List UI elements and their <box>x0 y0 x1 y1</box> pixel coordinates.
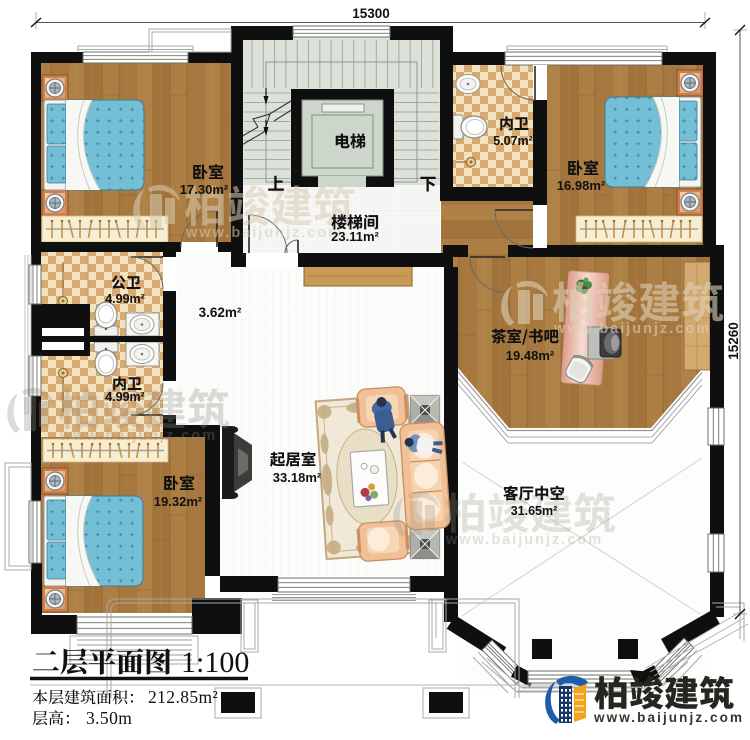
svg-text:4.99m²: 4.99m² <box>105 390 145 404</box>
svg-text:33.18m²: 33.18m² <box>273 470 322 485</box>
svg-text:4.99m²: 4.99m² <box>105 292 145 306</box>
svg-text:17.30m²: 17.30m² <box>180 182 229 197</box>
svg-text:19.48m²: 19.48m² <box>506 348 555 363</box>
svg-text:19.32m²: 19.32m² <box>154 494 203 509</box>
svg-text:16.98m²: 16.98m² <box>557 178 606 193</box>
svg-text:3.50m: 3.50m <box>86 708 132 728</box>
svg-text:15300: 15300 <box>352 6 390 21</box>
svg-text:3.62m²: 3.62m² <box>199 305 242 320</box>
svg-text:1:100: 1:100 <box>181 646 249 679</box>
svg-text:www.baijunjz.com: www.baijunjz.com <box>593 710 744 725</box>
svg-text:31.65m²: 31.65m² <box>511 504 558 518</box>
svg-text:23.11m²: 23.11m² <box>331 229 379 244</box>
svg-text:5.07m²: 5.07m² <box>493 134 533 148</box>
svg-text:15260: 15260 <box>726 322 741 360</box>
svg-text:212.85m²: 212.85m² <box>148 687 218 707</box>
